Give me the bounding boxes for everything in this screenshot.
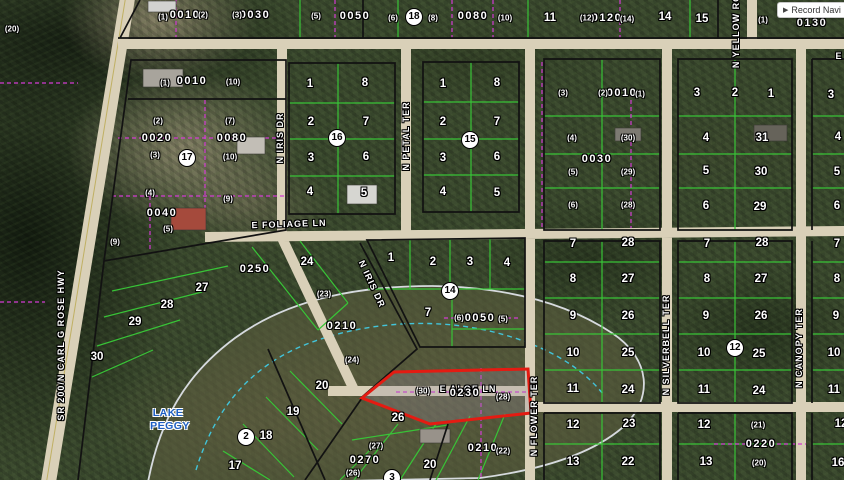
record-nav-label: Record Navi xyxy=(791,5,841,15)
building xyxy=(615,128,641,141)
building xyxy=(143,69,183,87)
map-canvas[interactable]: SR 200/N CARL G ROSE HWYN IRIS DRN IRIS … xyxy=(0,0,844,480)
building xyxy=(237,137,265,154)
building xyxy=(171,208,206,230)
building xyxy=(148,1,176,12)
play-icon: ▶ xyxy=(783,6,788,14)
map-vector-layer xyxy=(0,0,844,480)
building xyxy=(347,185,377,204)
road-sr200 xyxy=(48,0,128,480)
record-nav-button[interactable]: ▶ Record Navi xyxy=(777,2,844,18)
building xyxy=(754,125,787,141)
